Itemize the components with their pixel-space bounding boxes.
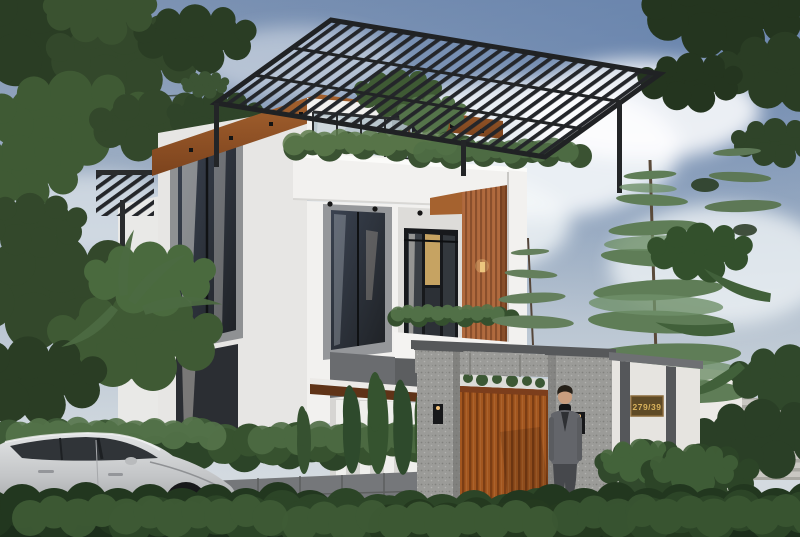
address-plaque: 279/39: [631, 396, 663, 416]
pergola-post-right: [617, 100, 622, 193]
address-number: 279/39: [633, 402, 662, 412]
scene-canvas: 279/39: [0, 0, 800, 537]
facade-right-column: [508, 170, 527, 360]
pergola-post-mid: [461, 140, 466, 176]
car-door-handle: [38, 470, 54, 473]
architectural-render: 279/39: [0, 0, 800, 537]
balcony-window: [404, 228, 458, 352]
pergola-post-left: [214, 103, 219, 167]
car-mirror: [125, 457, 137, 465]
